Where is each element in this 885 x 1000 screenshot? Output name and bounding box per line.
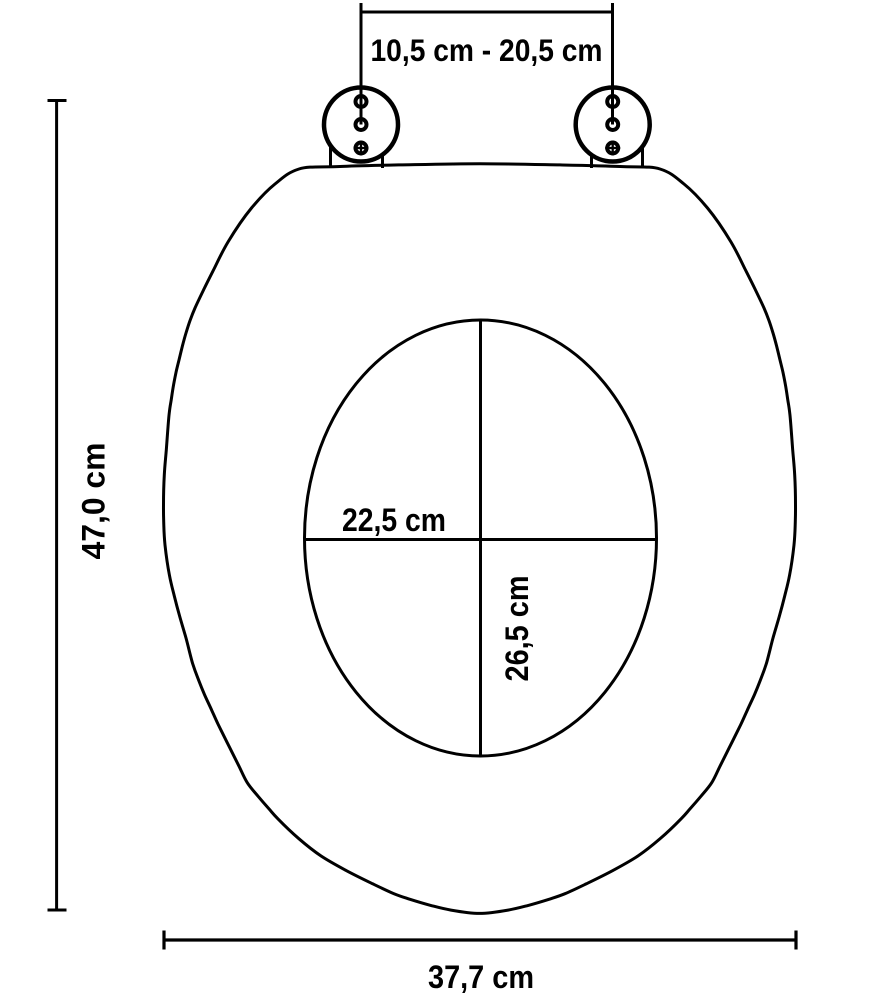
svg-text:37,7 cm: 37,7 cm [428, 959, 534, 995]
svg-text:26,5 cm: 26,5 cm [499, 576, 535, 682]
svg-text:47,0 cm: 47,0 cm [76, 443, 112, 560]
svg-text:10,5 cm - 20,5 cm: 10,5 cm - 20,5 cm [371, 32, 603, 68]
svg-text:22,5 cm: 22,5 cm [342, 502, 446, 538]
